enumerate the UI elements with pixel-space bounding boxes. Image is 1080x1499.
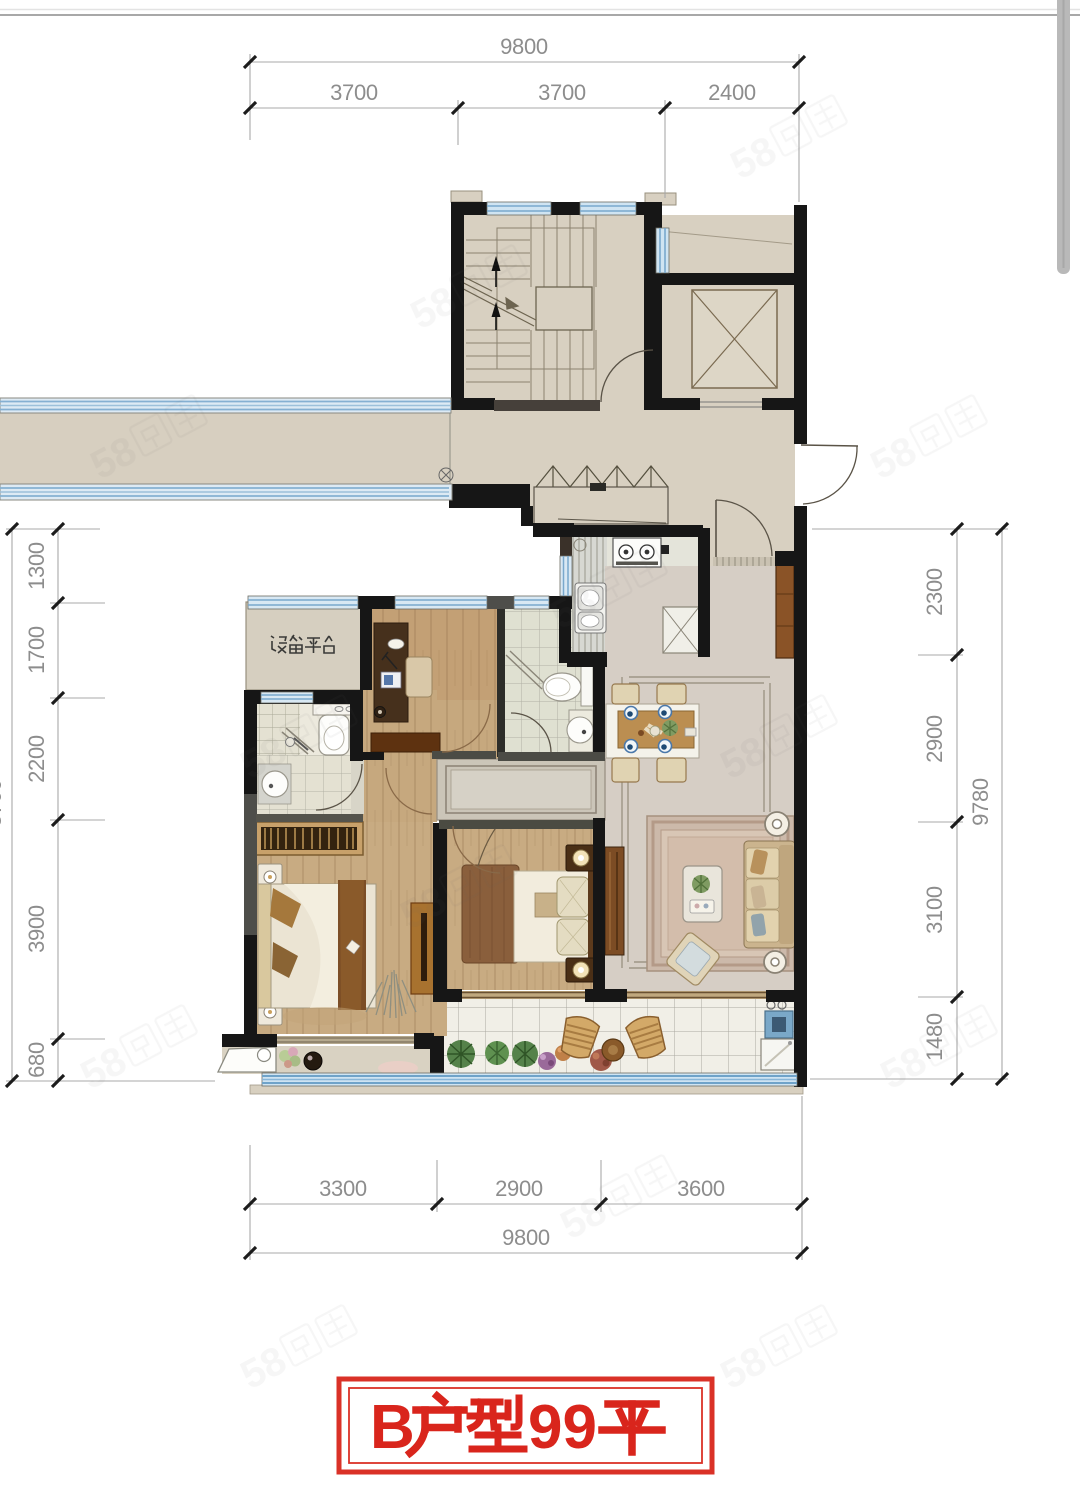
svg-text:3900: 3900 (24, 905, 49, 953)
svg-text:2900: 2900 (495, 1176, 543, 1201)
svg-text:680: 680 (24, 1042, 49, 1078)
svg-text:3300: 3300 (319, 1176, 367, 1201)
svg-text:3100: 3100 (922, 886, 947, 934)
svg-text:9800: 9800 (502, 1225, 550, 1250)
svg-text:1300: 1300 (24, 542, 49, 590)
svg-text:9780: 9780 (968, 778, 993, 826)
svg-text:9800: 9800 (500, 34, 548, 59)
svg-text:3600: 3600 (677, 1176, 725, 1201)
svg-text:2200: 2200 (24, 735, 49, 783)
svg-text:3700: 3700 (0, 779, 6, 827)
svg-text:2400: 2400 (708, 80, 756, 105)
svg-text:2300: 2300 (922, 568, 947, 616)
svg-text:1700: 1700 (24, 626, 49, 674)
svg-text:3700: 3700 (330, 80, 378, 105)
svg-text:2900: 2900 (922, 715, 947, 763)
svg-text:3700: 3700 (538, 80, 586, 105)
svg-text:99: 99 (528, 1393, 597, 1462)
